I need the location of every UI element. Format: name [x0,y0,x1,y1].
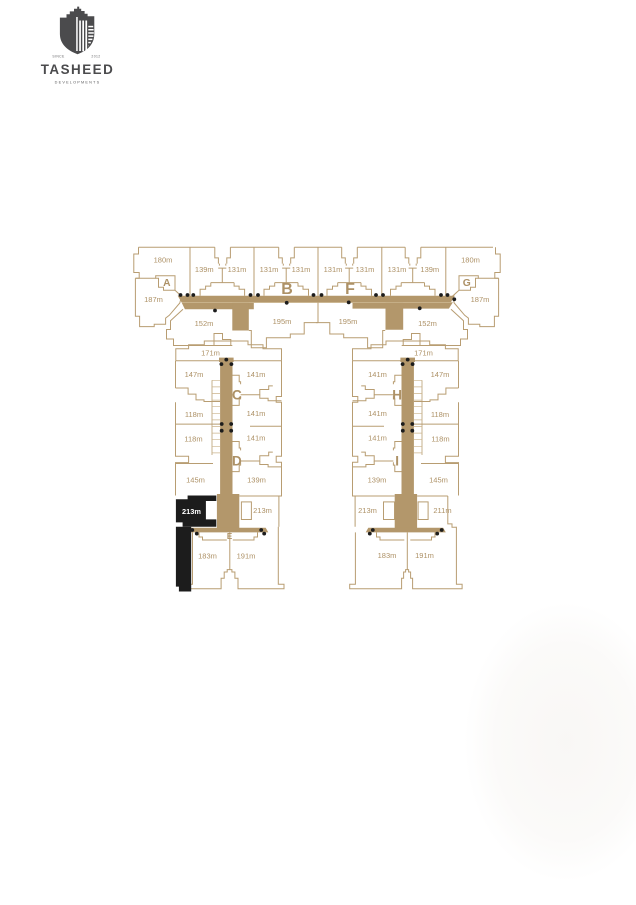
svg-text:131m: 131m [324,265,343,274]
svg-text:C: C [232,387,242,402]
svg-text:118m: 118m [185,410,203,419]
svg-text:E: E [227,532,233,541]
svg-text:213m: 213m [358,506,377,515]
svg-text:2012: 2012 [91,55,100,59]
svg-text:213m: 213m [253,506,272,515]
svg-text:H: H [392,387,402,402]
svg-text:G: G [463,278,471,289]
svg-text:A: A [163,278,171,289]
svg-text:187m: 187m [471,295,490,304]
svg-text:152m: 152m [418,319,437,328]
svg-text:191m: 191m [415,551,434,560]
svg-text:211m: 211m [433,506,451,515]
svg-text:180m: 180m [154,256,173,265]
svg-text:141m: 141m [247,409,266,418]
svg-text:139m: 139m [195,265,214,274]
svg-text:118m: 118m [184,435,202,444]
svg-text:141m: 141m [368,370,387,379]
svg-text:152m: 152m [195,319,214,328]
svg-text:141m: 141m [368,434,387,443]
svg-text:141m: 141m [368,409,387,418]
svg-text:180m: 180m [461,256,480,265]
svg-text:145m: 145m [186,476,205,485]
svg-text:141m: 141m [247,434,266,443]
svg-text:171m: 171m [201,348,220,357]
svg-text:TASHEED: TASHEED [41,62,115,77]
svg-text:213m: 213m [182,507,201,516]
svg-text:118m: 118m [431,410,449,419]
svg-text:147m: 147m [185,370,204,379]
svg-text:195m: 195m [273,317,292,326]
svg-text:145m: 145m [429,476,448,485]
svg-text:183m: 183m [378,551,397,560]
svg-text:191m: 191m [237,552,256,561]
svg-text:187m: 187m [144,295,163,304]
svg-text:I: I [395,454,399,469]
svg-text:131m: 131m [260,265,279,274]
svg-text:D: D [232,454,242,469]
svg-text:183m: 183m [198,552,217,561]
svg-text:131m: 131m [228,265,247,274]
svg-text:141m: 141m [247,370,266,379]
svg-text:F: F [345,281,355,298]
svg-text:131m: 131m [388,265,407,274]
svg-text:195m: 195m [339,317,358,326]
svg-text:139m: 139m [247,476,266,485]
svg-text:131m: 131m [356,265,375,274]
svg-text:139m: 139m [368,476,387,485]
svg-text:118m: 118m [431,435,449,444]
svg-text:DEVELOPMENTS: DEVELOPMENTS [55,81,101,85]
svg-text:171m: 171m [414,348,433,357]
svg-text:139m: 139m [420,265,439,274]
svg-text:B: B [281,281,293,298]
svg-text:131m: 131m [292,265,311,274]
svg-text:147m: 147m [431,370,450,379]
svg-text:SINCE: SINCE [52,55,65,59]
